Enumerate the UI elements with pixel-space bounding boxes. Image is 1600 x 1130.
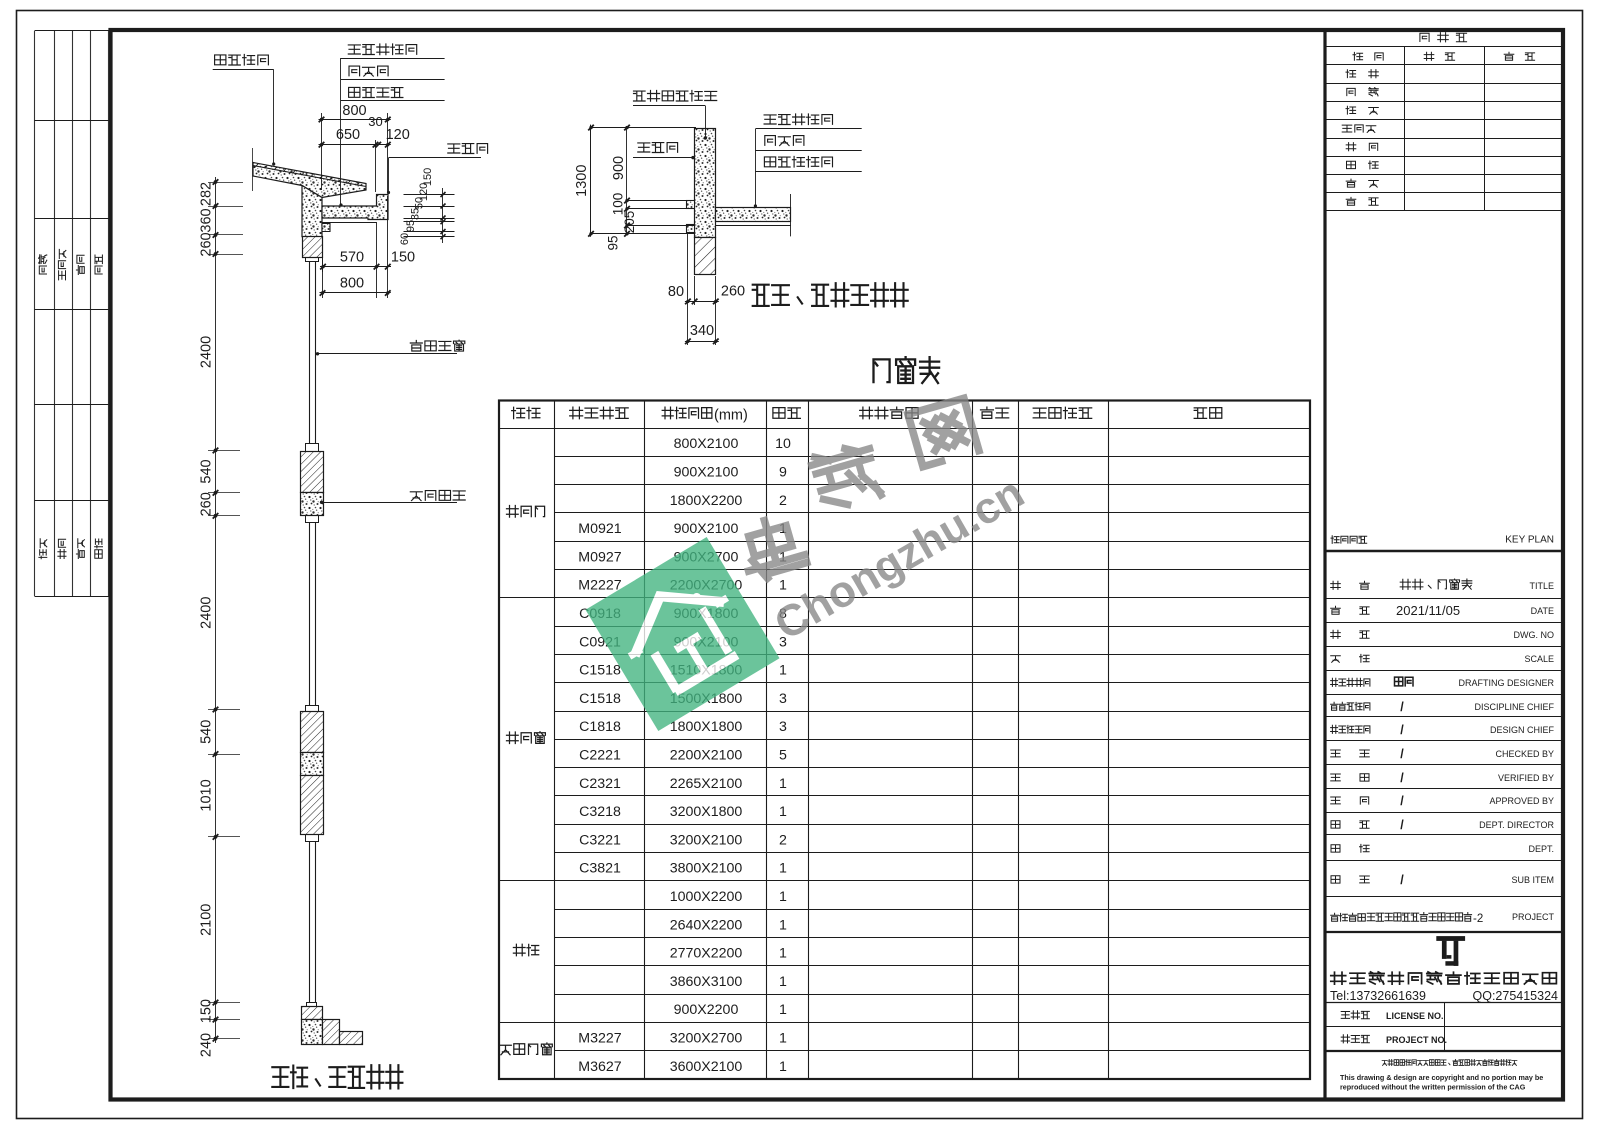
svg-text:1010: 1010 — [199, 779, 215, 811]
svg-text:800: 800 — [342, 103, 366, 119]
svg-text:570: 570 — [340, 250, 364, 266]
svg-text:/: / — [1400, 873, 1404, 887]
svg-text:5: 5 — [779, 748, 787, 764]
svg-text:/: / — [1400, 818, 1404, 832]
svg-text:800: 800 — [340, 276, 364, 292]
svg-text:282: 282 — [199, 182, 215, 206]
svg-text:VERIFIED BY: VERIFIED BY — [1498, 773, 1554, 783]
svg-text:900X2200: 900X2200 — [674, 1002, 739, 1018]
svg-text:SUB ITEM: SUB ITEM — [1511, 875, 1554, 885]
svg-text:/: / — [1400, 723, 1404, 737]
svg-text:reproduced without the written: reproduced without the written permissio… — [1340, 1083, 1526, 1092]
svg-text:2021/11/05: 2021/11/05 — [1396, 603, 1460, 618]
svg-text:1: 1 — [779, 974, 787, 990]
svg-text:3200X2100: 3200X2100 — [670, 832, 743, 848]
svg-text:2400: 2400 — [199, 597, 215, 629]
svg-text:240: 240 — [199, 1033, 215, 1057]
svg-text:900: 900 — [611, 156, 627, 180]
svg-text:PROJECT NO.: PROJECT NO. — [1386, 1035, 1447, 1045]
svg-text:PROJECT: PROJECT — [1512, 912, 1555, 922]
svg-text:900X2100: 900X2100 — [674, 465, 739, 481]
svg-text:-2: -2 — [1473, 913, 1483, 925]
svg-text:1: 1 — [779, 861, 787, 877]
svg-text:2265X2100: 2265X2100 — [670, 776, 743, 792]
svg-text:DEPT.: DEPT. — [1528, 844, 1554, 854]
svg-text:150: 150 — [391, 250, 415, 266]
svg-text:M3627: M3627 — [578, 1059, 621, 1075]
svg-text:2100: 2100 — [199, 904, 215, 936]
svg-text:1800X1800: 1800X1800 — [670, 719, 743, 735]
svg-text:DATE: DATE — [1531, 606, 1554, 616]
svg-text:3: 3 — [779, 719, 787, 735]
svg-text:540: 540 — [199, 720, 215, 744]
svg-text:CHECKED BY: CHECKED BY — [1495, 749, 1554, 759]
svg-text:1800X2200: 1800X2200 — [670, 493, 743, 509]
svg-text:800X2100: 800X2100 — [674, 436, 739, 452]
svg-text:1: 1 — [779, 1002, 787, 1018]
svg-text:650: 650 — [336, 127, 360, 143]
svg-text:C3218: C3218 — [579, 804, 621, 820]
svg-text:2: 2 — [779, 493, 787, 509]
svg-text:3600X2100: 3600X2100 — [670, 1059, 743, 1075]
svg-text:3: 3 — [779, 691, 787, 707]
svg-text:/: / — [1400, 747, 1404, 761]
svg-text:M0921: M0921 — [578, 521, 621, 537]
svg-text:95: 95 — [405, 220, 417, 232]
svg-text:95: 95 — [606, 235, 621, 250]
svg-text:30: 30 — [368, 114, 382, 129]
svg-text:1: 1 — [779, 889, 787, 905]
svg-text:C2321: C2321 — [579, 776, 621, 792]
svg-text:/: / — [1400, 794, 1404, 808]
svg-text:1: 1 — [779, 1059, 787, 1075]
svg-text:SCALE: SCALE — [1524, 654, 1554, 664]
svg-text:9: 9 — [779, 465, 787, 481]
svg-text:QQ:275415324: QQ:275415324 — [1473, 989, 1559, 1003]
svg-text:C1818: C1818 — [579, 719, 621, 735]
svg-text:1: 1 — [779, 917, 787, 933]
svg-text:APPROVED BY: APPROVED BY — [1489, 796, 1554, 806]
svg-text:/: / — [1400, 700, 1404, 714]
svg-text:1: 1 — [779, 946, 787, 962]
svg-text:540: 540 — [199, 459, 215, 483]
svg-text:260: 260 — [199, 492, 215, 516]
svg-text:2640X2200: 2640X2200 — [670, 917, 743, 933]
svg-text:M3227: M3227 — [578, 1031, 621, 1047]
svg-text:C1518: C1518 — [579, 691, 621, 707]
svg-text:TITLE: TITLE — [1529, 581, 1554, 591]
svg-text:3200X2700: 3200X2700 — [670, 1031, 743, 1047]
svg-text:C3821: C3821 — [579, 861, 621, 877]
svg-text:M0927: M0927 — [578, 549, 621, 565]
svg-text:2: 2 — [779, 832, 787, 848]
svg-text:360: 360 — [199, 208, 215, 232]
svg-text:60: 60 — [399, 233, 411, 245]
svg-text:/: / — [1400, 771, 1404, 785]
svg-text:3200X1800: 3200X1800 — [670, 804, 743, 820]
svg-text:1: 1 — [779, 776, 787, 792]
svg-text:DRAFTING DESIGNER: DRAFTING DESIGNER — [1458, 678, 1554, 688]
svg-text:DWG. NO: DWG. NO — [1514, 630, 1555, 640]
svg-text:(mm): (mm) — [714, 408, 748, 424]
svg-text:1: 1 — [779, 1031, 787, 1047]
svg-text:1300: 1300 — [574, 165, 590, 197]
svg-text:This drawing & design are copy: This drawing & design are copyright and … — [1340, 1073, 1543, 1082]
svg-text:1: 1 — [779, 804, 787, 820]
svg-text:10: 10 — [775, 436, 791, 452]
svg-text:1: 1 — [779, 578, 787, 594]
svg-text:1: 1 — [779, 663, 787, 679]
svg-text:3860X3100: 3860X3100 — [670, 974, 743, 990]
svg-text:KEY PLAN: KEY PLAN — [1505, 535, 1554, 546]
svg-text:DESIGN CHIEF: DESIGN CHIEF — [1490, 725, 1555, 735]
svg-text:3800X2100: 3800X2100 — [670, 861, 743, 877]
svg-text:80: 80 — [668, 284, 684, 300]
svg-text:DEPT. DIRECTOR: DEPT. DIRECTOR — [1479, 820, 1554, 830]
svg-text:LICENSE NO.: LICENSE NO. — [1386, 1011, 1444, 1021]
svg-text:C1518: C1518 — [579, 663, 621, 679]
svg-text:DISCIPLINE CHIEF: DISCIPLINE CHIEF — [1474, 702, 1554, 712]
svg-text:50: 50 — [413, 197, 425, 209]
svg-text:150: 150 — [199, 999, 215, 1023]
svg-text:1000X2200: 1000X2200 — [670, 889, 743, 905]
svg-text:260: 260 — [199, 232, 215, 256]
svg-text:C3221: C3221 — [579, 832, 621, 848]
svg-text:900X2100: 900X2100 — [674, 521, 739, 537]
svg-text:205: 205 — [622, 211, 637, 234]
svg-text:260: 260 — [721, 284, 745, 300]
svg-text:Tel:13732661639: Tel:13732661639 — [1330, 989, 1426, 1003]
svg-text:C2221: C2221 — [579, 748, 621, 764]
svg-text:120: 120 — [386, 127, 410, 143]
svg-text:2400: 2400 — [199, 336, 215, 368]
svg-text:35: 35 — [409, 208, 421, 220]
svg-text:340: 340 — [690, 323, 714, 339]
svg-text:2200X2100: 2200X2100 — [670, 748, 743, 764]
svg-text:M2227: M2227 — [578, 578, 621, 594]
svg-text:2770X2200: 2770X2200 — [670, 946, 743, 962]
